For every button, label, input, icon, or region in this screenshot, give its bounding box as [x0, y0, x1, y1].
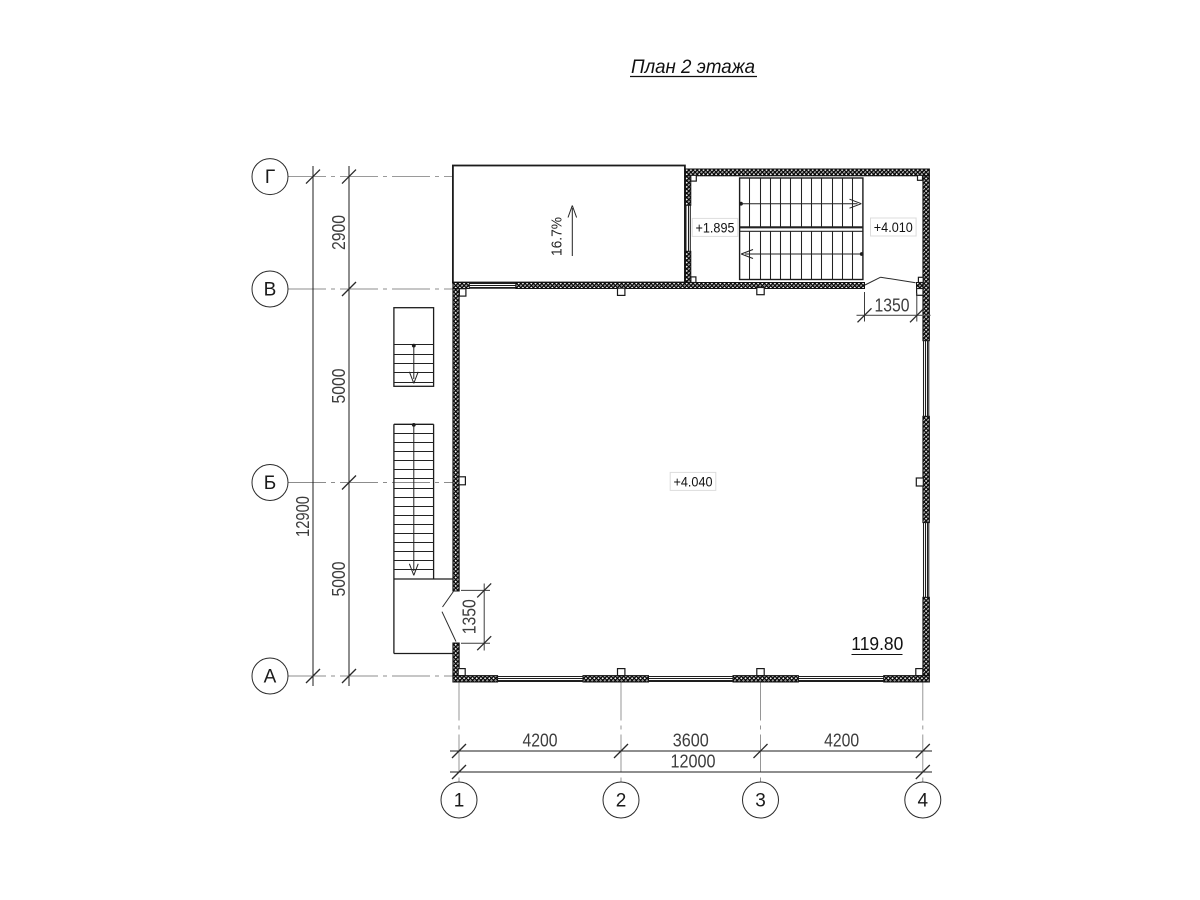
- svg-text:119.80: 119.80: [851, 634, 903, 654]
- svg-text:4200: 4200: [523, 731, 558, 751]
- svg-text:+4.010: +4.010: [874, 219, 913, 235]
- svg-text:3: 3: [755, 791, 766, 812]
- svg-text:1350: 1350: [875, 296, 910, 316]
- svg-text:5000: 5000: [329, 562, 349, 597]
- svg-text:Б: Б: [264, 473, 276, 494]
- svg-text:12900: 12900: [293, 496, 313, 537]
- svg-text:1: 1: [454, 791, 465, 812]
- svg-text:16.7%: 16.7%: [550, 217, 566, 256]
- svg-text:4: 4: [918, 791, 929, 812]
- svg-text:+1.895: +1.895: [696, 219, 735, 235]
- svg-text:+4.040: +4.040: [674, 473, 713, 489]
- svg-text:В: В: [264, 280, 277, 301]
- svg-text:2: 2: [616, 791, 627, 812]
- svg-text:Г: Г: [265, 167, 275, 188]
- svg-text:4200: 4200: [824, 731, 859, 751]
- svg-text:План 2 этажа: План 2 этажа: [631, 56, 755, 78]
- svg-text:5000: 5000: [329, 369, 349, 404]
- svg-text:3600: 3600: [673, 731, 709, 751]
- svg-text:2900: 2900: [329, 215, 349, 250]
- svg-text:1350: 1350: [460, 599, 480, 634]
- svg-text:12000: 12000: [671, 752, 716, 772]
- svg-text:А: А: [264, 667, 277, 688]
